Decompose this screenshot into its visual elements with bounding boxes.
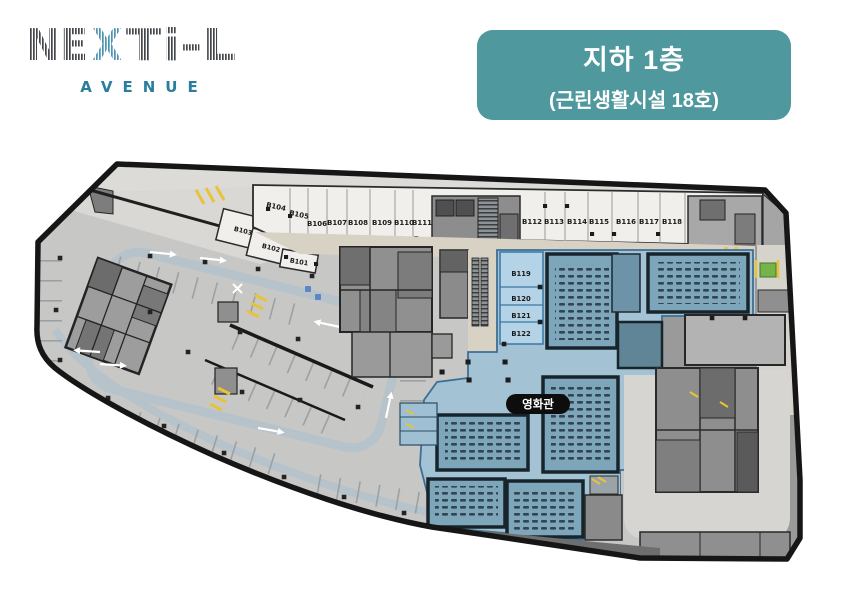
right-open-room bbox=[685, 315, 785, 365]
unit-label-b122: B122 bbox=[511, 330, 531, 338]
unit-label-b114: B114 bbox=[567, 218, 587, 226]
unit-label-b109: B109 bbox=[372, 219, 392, 227]
unit-label-b108: B108 bbox=[348, 219, 368, 227]
unit-label-b111: B111 bbox=[412, 219, 432, 227]
cinema-room-column: B119 B120 B121 B122 bbox=[500, 252, 543, 344]
cinema-small-rooms bbox=[400, 403, 437, 445]
cinema-label-pill: 영화관 bbox=[506, 394, 570, 414]
parking-room bbox=[218, 302, 238, 322]
ramp-island-rooms bbox=[656, 368, 758, 492]
cinema-side-rooms bbox=[612, 254, 640, 312]
page: NEXTi-L AVENUE 지하 1층 (근린생활시설 18호) bbox=[0, 0, 842, 595]
floor-plan: B103 B102 B101 bbox=[0, 0, 842, 595]
unit-label-b119: B119 bbox=[511, 270, 531, 278]
unit-label-b121: B121 bbox=[511, 312, 531, 320]
unit-label-b117: B117 bbox=[639, 218, 659, 226]
cinema-stair-block bbox=[618, 322, 662, 368]
unit-label-b118: B118 bbox=[662, 218, 682, 226]
small-room bbox=[758, 290, 790, 312]
unit-label-b115: B115 bbox=[589, 218, 609, 226]
stair-room bbox=[585, 495, 622, 540]
escalator bbox=[472, 258, 479, 326]
stair-block bbox=[590, 476, 618, 494]
plan-interior: B103 B102 B101 bbox=[30, 150, 812, 585]
unit-label-b120: B120 bbox=[511, 295, 531, 303]
green-landscape-area bbox=[760, 263, 776, 277]
unit-label-b106: B106 bbox=[307, 220, 327, 228]
bottom-rooms bbox=[640, 532, 790, 558]
unit-label-b113: B113 bbox=[544, 218, 564, 226]
unit-label-b116: B116 bbox=[616, 218, 636, 226]
escalator bbox=[481, 258, 488, 326]
parking-room bbox=[215, 368, 237, 394]
cinema-label: 영화관 bbox=[522, 397, 554, 411]
unit-label-b112: B112 bbox=[522, 218, 542, 226]
unit-label-b107: B107 bbox=[327, 219, 347, 227]
center-boh bbox=[340, 247, 468, 377]
